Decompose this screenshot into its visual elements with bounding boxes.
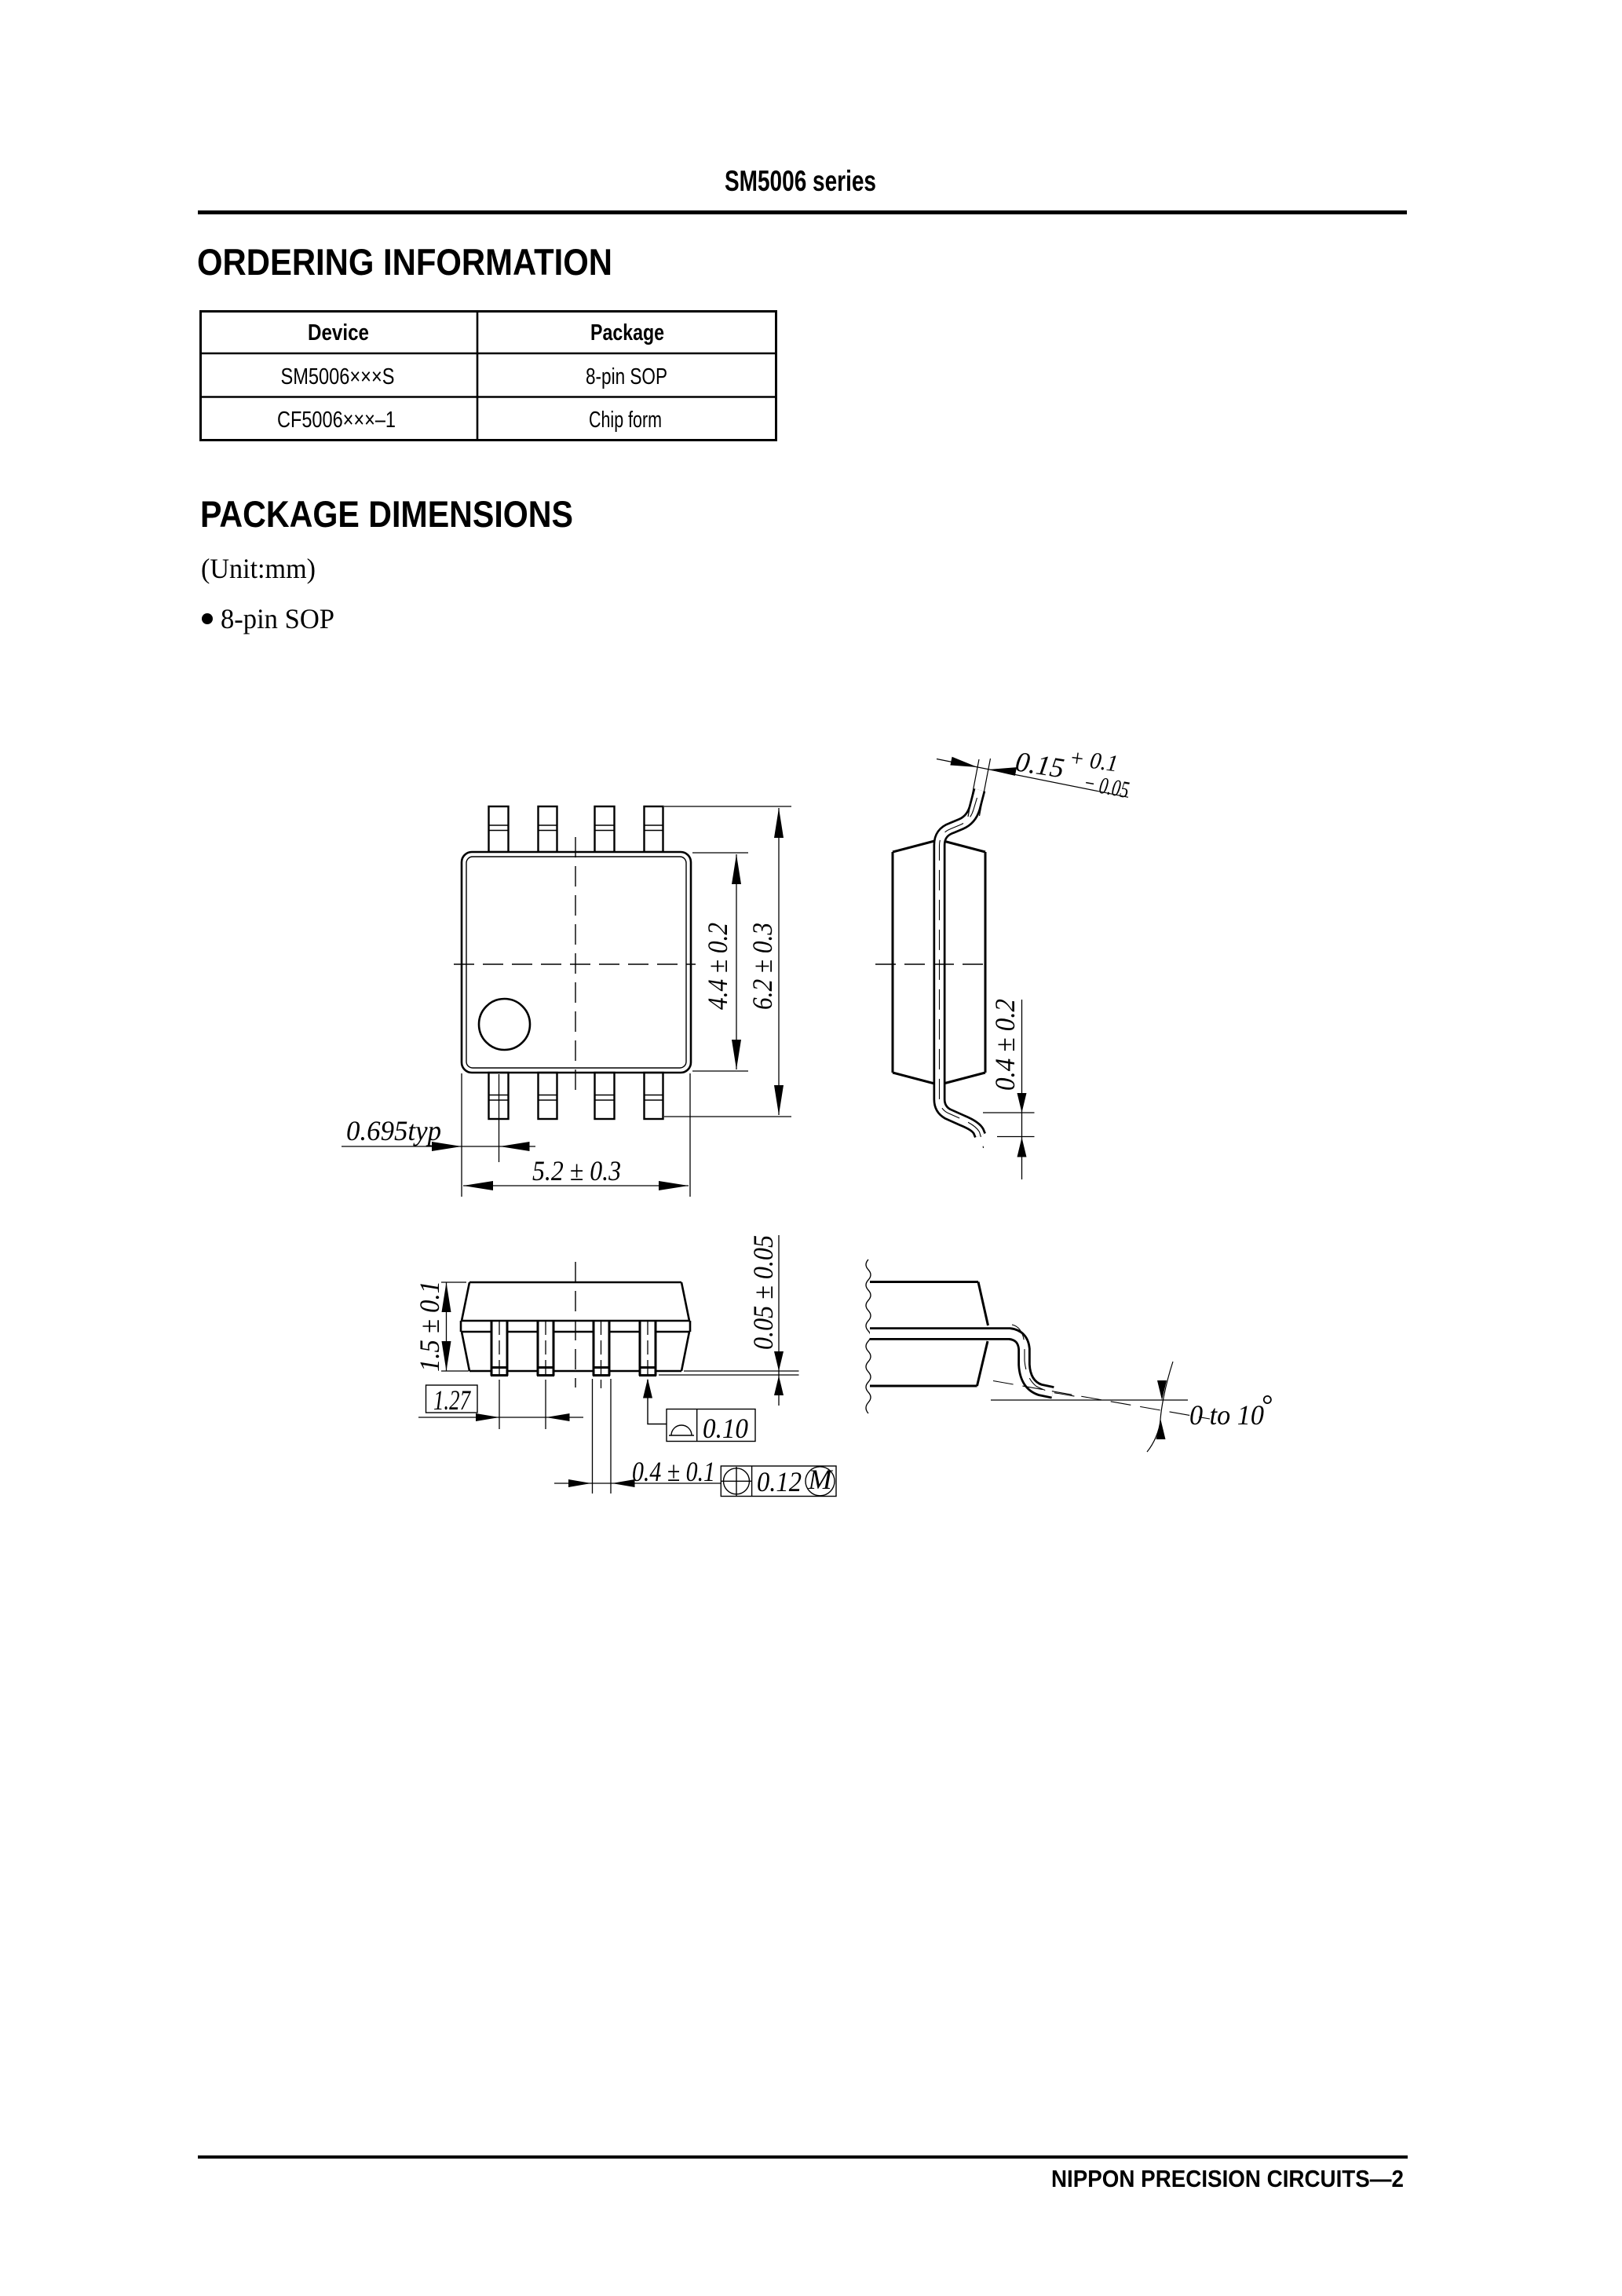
svg-text:8-pin SOP: 8-pin SOP [221,603,334,634]
svg-text:0.4 ± 0.1: 0.4 ± 0.1 [632,1456,715,1487]
svg-text:SM5006×××S: SM5006×××S [281,364,395,389]
svg-text:0.12: 0.12 [757,1466,802,1497]
svg-text:NIPPON PRECISION CIRCUITS—2: NIPPON PRECISION CIRCUITS—2 [1051,2165,1404,2192]
svg-text:Chip form: Chip form [589,408,662,433]
svg-text:M: M [808,1464,834,1495]
svg-text:0.05 ± 0.05: 0.05 ± 0.05 [747,1235,779,1350]
svg-text:0.695typ: 0.695typ [346,1115,441,1146]
svg-text:0.4 ± 0.2: 0.4 ± 0.2 [989,999,1021,1091]
svg-text:CF5006×××–1: CF5006×××–1 [277,408,396,433]
svg-text:°: ° [1261,1389,1272,1420]
svg-text:8-pin SOP: 8-pin SOP [586,364,667,389]
svg-text:6.2 ± 0.3: 6.2 ± 0.3 [747,923,778,1010]
svg-text:1.27: 1.27 [433,1384,471,1416]
svg-text:0 to 10: 0 to 10 [1189,1399,1264,1431]
svg-text:0.10: 0.10 [703,1413,748,1444]
svg-text:0.15: 0.15 [1014,745,1066,784]
svg-text:Device: Device [308,320,369,345]
svg-text:1.5 ± 0.1: 1.5 ± 0.1 [414,1281,445,1372]
svg-text:PACKAGE DIMENSIONS: PACKAGE DIMENSIONS [200,493,573,535]
svg-text:Package: Package [590,320,664,345]
svg-text:5.2 ± 0.3: 5.2 ± 0.3 [532,1155,621,1186]
svg-text:4.4 ± 0.2: 4.4 ± 0.2 [702,923,733,1010]
svg-text:(Unit:mm): (Unit:mm) [201,553,316,584]
svg-text:SM5006 series: SM5006 series [725,165,876,197]
svg-text:− 0.05: − 0.05 [1082,770,1131,803]
svg-text:ORDERING INFORMATION: ORDERING INFORMATION [197,241,612,283]
